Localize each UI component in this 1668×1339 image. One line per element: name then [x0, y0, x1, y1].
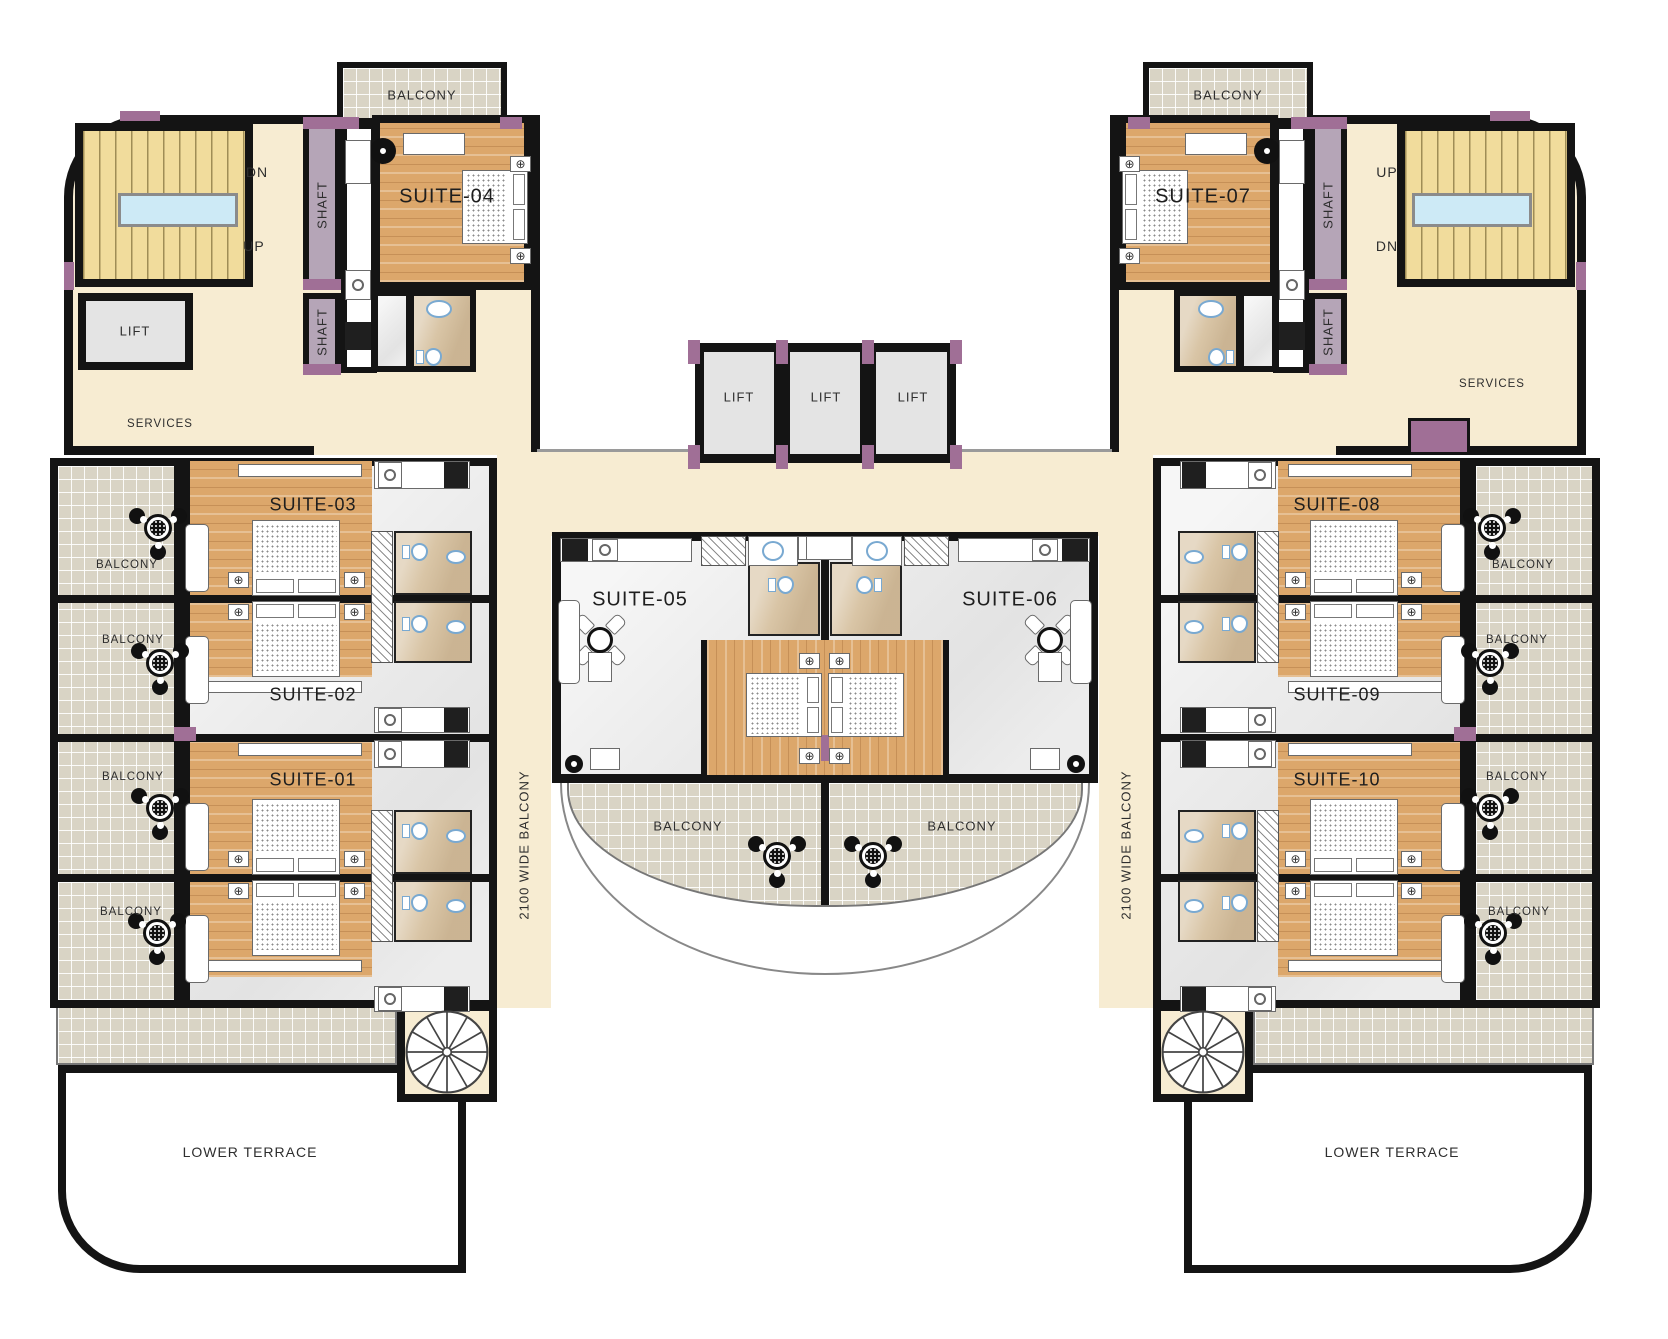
bedspread [1313, 803, 1395, 851]
counter-icon [1279, 140, 1305, 184]
sink-icon [1198, 300, 1224, 318]
column-pier [303, 279, 341, 290]
wall-segment [1468, 595, 1600, 603]
sofa-icon [185, 524, 209, 592]
balcony-label-l2: BALCONY [102, 634, 164, 646]
shower-sink-icon [866, 541, 888, 561]
column-pier [1128, 117, 1150, 129]
sofa-icon [1441, 803, 1465, 871]
sink-icon [384, 993, 396, 1005]
column-pier [303, 117, 341, 129]
toilet-icon [768, 576, 794, 594]
column-pier [120, 111, 160, 121]
balcony-label-c2: BALCONY [927, 819, 996, 834]
column-pier [950, 340, 962, 364]
suite-08-label: SUITE-08 [1293, 495, 1380, 516]
table-icon [806, 536, 852, 560]
counter-icon [1288, 743, 1412, 756]
lamp-icon: ⊕ [233, 574, 243, 586]
lamp-icon: ⊕ [349, 574, 359, 586]
table-icon [1482, 800, 1498, 816]
suite-04-hall [372, 290, 412, 372]
bedspread [255, 803, 337, 851]
column-pier [688, 340, 700, 364]
lamp-icon: ⊕ [1290, 606, 1300, 618]
column-pier [303, 364, 341, 375]
wardrobe-icon [1257, 531, 1279, 663]
pillow-icon [1356, 579, 1394, 593]
sofa-icon [558, 600, 580, 684]
table-icon [1030, 748, 1060, 770]
balcony-label-c1: BALCONY [653, 819, 722, 834]
wall-segment [701, 640, 707, 775]
balcony-label-l4: BALCONY [100, 906, 162, 918]
wardrobe-icon [371, 810, 393, 942]
lamp-icon: ⊕ [804, 750, 814, 762]
lamp-icon: ⊕ [834, 750, 844, 762]
toilet-icon [416, 348, 442, 366]
column-pier [1309, 117, 1347, 129]
sink-icon [426, 300, 452, 318]
suite-10-label: SUITE-10 [1293, 770, 1380, 791]
table-icon [403, 133, 465, 155]
bedspread [255, 524, 337, 572]
sink-icon [446, 829, 466, 843]
sofa-icon [1441, 524, 1465, 592]
pillow-icon [1125, 209, 1137, 240]
pillow-icon [1125, 174, 1137, 205]
sofa-icon [185, 803, 209, 871]
lamp-icon: ⊕ [1124, 250, 1134, 262]
counter-icon [345, 140, 371, 184]
sink-icon [446, 899, 466, 913]
balcony-label-l1: BALCONY [96, 559, 158, 571]
counter-icon [238, 743, 362, 756]
suite-07-hall [1238, 290, 1278, 372]
table-icon [1185, 133, 1247, 155]
lamp-icon: ⊕ [515, 250, 525, 262]
wall-segment [50, 595, 182, 603]
wc-room [748, 562, 820, 636]
stove-icon [1062, 539, 1088, 561]
sofa-icon [185, 915, 209, 983]
stove-icon [444, 462, 468, 488]
stove-icon [1279, 322, 1305, 350]
pillow-icon [1314, 604, 1352, 618]
pillow-icon [513, 174, 525, 205]
column-pier [64, 262, 74, 290]
sink-icon [352, 279, 364, 291]
wc-room [830, 562, 902, 636]
bedspread [255, 902, 337, 950]
stove-icon [1182, 462, 1206, 488]
wall-segment [1468, 874, 1600, 882]
stair-right-dn-label: DN [1376, 238, 1398, 254]
wide-balcony-label-left: 2100 WIDE BALCONY [517, 770, 532, 919]
sink-icon [1039, 544, 1051, 556]
sink-icon [384, 714, 396, 726]
toilet-icon [1222, 894, 1248, 912]
bedspread [1313, 524, 1395, 572]
speaker-icon [380, 148, 386, 154]
lamp-icon: ⊕ [1290, 853, 1300, 865]
table-icon [1485, 925, 1501, 941]
lamp-icon: ⊕ [1406, 853, 1416, 865]
lamp-icon: ⊕ [349, 606, 359, 618]
lower-terrace-left-label: LOWER TERRACE [183, 1144, 318, 1160]
wall-segment [50, 734, 182, 742]
lamp-icon: ⊕ [1406, 606, 1416, 618]
shaft-label-l2: SHAFT [315, 308, 330, 356]
column-pier [862, 445, 874, 469]
column-pier [337, 117, 359, 129]
sink-icon [1184, 550, 1204, 564]
sink-icon [1286, 279, 1298, 291]
wardrobe-icon [1257, 810, 1279, 942]
stair-right-up-label: UP [1376, 164, 1397, 180]
stove-icon [562, 539, 588, 561]
column-pier [862, 340, 874, 364]
stair-left-skylight [118, 193, 238, 227]
wardrobe-icon [904, 536, 949, 566]
tile-apron-left [56, 1005, 397, 1065]
counter-icon [238, 464, 362, 477]
sink-icon [446, 550, 466, 564]
column-pier [776, 340, 788, 364]
column-pier [1291, 117, 1313, 129]
sink-icon [384, 469, 396, 481]
balcony-label-tr: BALCONY [1193, 88, 1262, 103]
table-icon [769, 848, 785, 864]
pillow-icon [807, 707, 819, 733]
table-icon [150, 520, 166, 536]
services-right-label: SERVICES [1459, 378, 1525, 390]
lift-3-label: LIFT [898, 390, 929, 405]
shaft-label-l1: SHAFT [315, 181, 330, 229]
dining-table-icon [587, 627, 613, 653]
stove-icon [345, 322, 371, 350]
suite-06-label: SUITE-06 [962, 589, 1058, 612]
stove-icon [1182, 708, 1206, 732]
pillow-icon [831, 677, 843, 703]
pillow-icon [256, 883, 294, 897]
lamp-icon: ⊕ [1406, 574, 1416, 586]
wall-segment [943, 640, 949, 775]
pillow-icon [1314, 858, 1352, 872]
column-pier [1490, 111, 1530, 121]
speaker-icon [1264, 148, 1270, 154]
spiral-stair-icon [404, 1009, 490, 1095]
sink-icon [446, 620, 466, 634]
wall-segment [50, 874, 182, 882]
wall-segment [1468, 734, 1600, 742]
counter-icon [1288, 960, 1460, 972]
sink-icon [599, 544, 611, 556]
lamp-icon: ⊕ [834, 655, 844, 667]
table-icon [590, 748, 620, 770]
stair-right-skylight [1412, 193, 1532, 227]
lamp-icon: ⊕ [233, 853, 243, 865]
pillow-icon [298, 883, 336, 897]
balcony-label-r2: BALCONY [1486, 634, 1548, 646]
wide-balcony-label-right: 2100 WIDE BALCONY [1119, 770, 1134, 919]
pillow-icon [298, 579, 336, 593]
column-pier [1309, 364, 1347, 375]
toilet-icon [402, 615, 428, 633]
pillow-icon [1356, 883, 1394, 897]
wardrobe-icon [371, 531, 393, 663]
balcony-label-tl: BALCONY [387, 88, 456, 103]
speaker-icon [1073, 761, 1079, 767]
bedspread [255, 623, 337, 671]
column-pier [776, 445, 788, 469]
sofa-icon [185, 636, 209, 704]
stair-left-dn-label: DN [246, 164, 268, 180]
lamp-icon: ⊕ [515, 158, 525, 170]
pillow-icon [256, 579, 294, 593]
bedspread [1313, 902, 1395, 950]
column-pier [688, 445, 700, 469]
balcony-label-r1: BALCONY [1492, 559, 1554, 571]
pillow-icon [831, 707, 843, 733]
toilet-icon [402, 822, 428, 840]
toilet-icon [402, 543, 428, 561]
suite-05-label: SUITE-05 [592, 589, 688, 612]
toilet-icon [856, 576, 882, 594]
column-pier [174, 727, 196, 741]
pillow-icon [1314, 883, 1352, 897]
pillow-icon [298, 858, 336, 872]
stove-icon [1182, 741, 1206, 767]
sink-icon [1254, 748, 1266, 760]
sink-icon [384, 748, 396, 760]
lamp-icon: ⊕ [349, 885, 359, 897]
suite-07-label: SUITE-07 [1155, 186, 1251, 209]
toilet-icon [402, 894, 428, 912]
stair-left-up-label: UP [243, 238, 264, 254]
lift-1-label: LIFT [724, 390, 755, 405]
stove-icon [444, 987, 468, 1011]
sink-icon [1254, 714, 1266, 726]
counter-icon [1288, 464, 1412, 477]
lamp-icon: ⊕ [233, 885, 243, 897]
pillow-icon [1314, 579, 1352, 593]
table-icon [1038, 652, 1062, 682]
shaft-label-r1: SHAFT [1321, 181, 1336, 229]
column-pier [1576, 262, 1586, 290]
column-pier [1454, 727, 1476, 741]
counter-icon [190, 960, 362, 972]
tile-apron-right [1253, 1005, 1594, 1065]
toilet-icon [1222, 615, 1248, 633]
lamp-icon: ⊕ [1406, 885, 1416, 897]
pillow-icon [256, 858, 294, 872]
table-icon [588, 652, 612, 682]
bedspread [848, 676, 898, 734]
table-icon [1484, 520, 1500, 536]
lower-terrace-right-label: LOWER TERRACE [1325, 1144, 1460, 1160]
toilet-icon [1222, 822, 1248, 840]
floor-plan: BALCONY BALCONY SUITE-04 SUITE-07 DN UP … [0, 0, 1668, 1339]
lamp-icon: ⊕ [1290, 574, 1300, 586]
corridor-strip-right [1099, 452, 1153, 1008]
lamp-icon: ⊕ [804, 655, 814, 667]
sink-icon [1254, 469, 1266, 481]
table-icon [152, 655, 168, 671]
speaker-icon [571, 761, 577, 767]
corridor-strip-left [497, 452, 551, 1008]
pillow-icon [807, 677, 819, 703]
stove-icon [1182, 987, 1206, 1011]
toilet-icon [1208, 348, 1234, 366]
services-left-label: SERVICES [127, 418, 193, 430]
pillow-icon [1356, 858, 1394, 872]
pillow-icon [298, 604, 336, 618]
column-pier [1309, 279, 1347, 290]
shaft-label-r2: SHAFT [1321, 308, 1336, 356]
table-icon [1482, 655, 1498, 671]
pillow-icon [256, 604, 294, 618]
lift-2-label: LIFT [811, 390, 842, 405]
sink-icon [1254, 993, 1266, 1005]
lamp-icon: ⊕ [349, 853, 359, 865]
spiral-stair-icon [1160, 1009, 1246, 1095]
corridor-band [497, 452, 1153, 536]
suite-04-label: SUITE-04 [399, 186, 495, 209]
sink-icon [1184, 829, 1204, 843]
suite-02-label: SUITE-02 [269, 685, 356, 706]
wardrobe-icon [701, 536, 746, 566]
balcony-label-l3: BALCONY [102, 771, 164, 783]
pillow-icon [513, 209, 525, 240]
table-icon [149, 925, 165, 941]
suite-09-label: SUITE-09 [1293, 685, 1380, 706]
lamp-icon: ⊕ [1290, 885, 1300, 897]
suite-01-label: SUITE-01 [269, 770, 356, 791]
column-pier [950, 445, 962, 469]
sofa-icon [1441, 915, 1465, 983]
lamp-icon: ⊕ [233, 606, 243, 618]
pillow-icon [1356, 604, 1394, 618]
stove-icon [444, 741, 468, 767]
table-icon [865, 848, 881, 864]
balcony-label-r4: BALCONY [1488, 906, 1550, 918]
toilet-icon [1222, 543, 1248, 561]
shower-sink-icon [762, 541, 784, 561]
table-icon [152, 800, 168, 816]
column-pier [821, 735, 829, 761]
sink-icon [1184, 620, 1204, 634]
suite-03-label: SUITE-03 [269, 495, 356, 516]
lamp-icon: ⊕ [1124, 158, 1134, 170]
bedspread [750, 676, 800, 734]
balcony-label-r3: BALCONY [1486, 771, 1548, 783]
sofa-icon [1070, 600, 1092, 684]
bedspread [1313, 623, 1395, 671]
lift-left-label: LIFT [120, 324, 151, 339]
dining-table-icon [1037, 627, 1063, 653]
sink-icon [1184, 899, 1204, 913]
stove-icon [444, 708, 468, 732]
services-duct-right [1408, 418, 1470, 455]
column-pier [500, 117, 522, 129]
